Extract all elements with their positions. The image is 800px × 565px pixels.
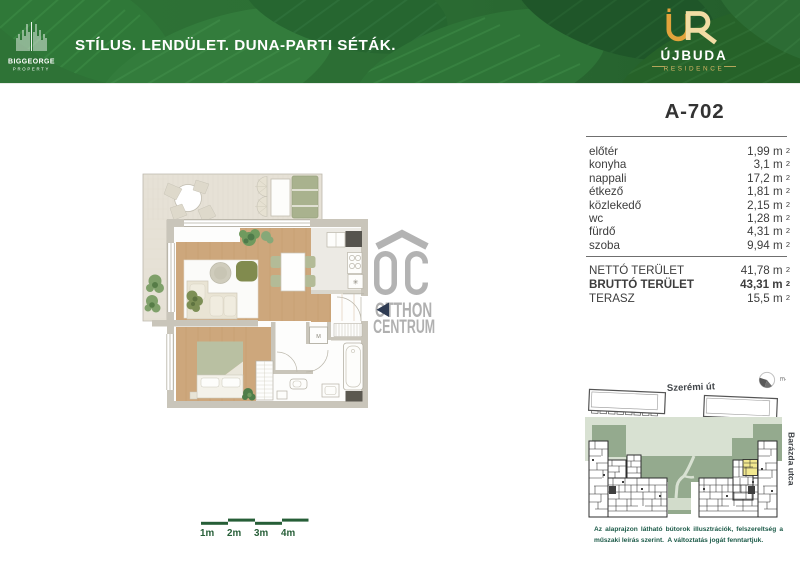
svg-text:É: É bbox=[778, 377, 787, 382]
svg-text:✳: ✳ bbox=[353, 279, 359, 287]
svg-text:BIGGEORGE: BIGGEORGE bbox=[8, 59, 55, 66]
svg-text:2m: 2m bbox=[227, 528, 241, 539]
svg-text:CENTRUM: CENTRUM bbox=[373, 316, 435, 337]
svg-text:Barázda utca: Barázda utca bbox=[787, 432, 797, 486]
svg-text:M: M bbox=[316, 334, 321, 340]
svg-text:3m: 3m bbox=[254, 528, 268, 539]
svg-text:PROPERTY: PROPERTY bbox=[13, 67, 50, 72]
svg-text:4m: 4m bbox=[281, 528, 295, 539]
svg-text:1m: 1m bbox=[200, 528, 214, 539]
svg-text:Szerémi út: Szerémi út bbox=[667, 381, 716, 394]
svg-text:RESIDENCE: RESIDENCE bbox=[664, 66, 725, 73]
svg-text:ÚJBUDA: ÚJBUDA bbox=[660, 48, 727, 63]
